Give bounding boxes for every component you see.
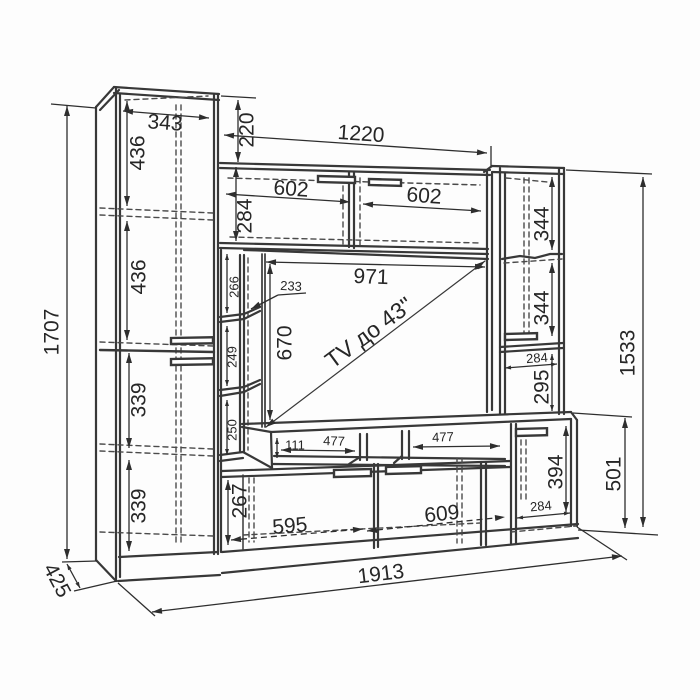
svg-text:339: 339 — [128, 488, 151, 523]
svg-text:284: 284 — [234, 198, 257, 233]
svg-text:111: 111 — [285, 437, 305, 452]
svg-text:595: 595 — [271, 513, 308, 539]
svg-text:1707: 1707 — [41, 309, 64, 356]
svg-text:339: 339 — [128, 382, 151, 417]
svg-text:394: 394 — [545, 454, 568, 489]
svg-text:1533: 1533 — [617, 330, 640, 377]
svg-text:602: 602 — [406, 183, 443, 208]
svg-text:343: 343 — [147, 110, 184, 135]
svg-text:1220: 1220 — [337, 121, 385, 147]
svg-text:1913: 1913 — [356, 560, 405, 589]
svg-text:284: 284 — [529, 498, 552, 515]
svg-text:425: 425 — [38, 560, 75, 602]
svg-text:TV до 43": TV до 43" — [320, 292, 418, 374]
svg-text:436: 436 — [128, 259, 151, 294]
svg-text:295: 295 — [531, 369, 554, 404]
svg-text:971: 971 — [353, 265, 389, 289]
svg-text:501: 501 — [603, 456, 626, 491]
svg-text:609: 609 — [423, 501, 460, 528]
svg-text:266: 266 — [226, 276, 241, 298]
svg-text:477: 477 — [323, 433, 345, 449]
svg-text:267: 267 — [229, 483, 252, 518]
svg-text:344: 344 — [531, 206, 554, 241]
svg-text:477: 477 — [432, 429, 454, 445]
svg-text:602: 602 — [273, 176, 310, 201]
svg-text:284: 284 — [526, 350, 549, 366]
svg-text:250: 250 — [224, 419, 239, 441]
svg-text:249: 249 — [224, 346, 239, 368]
svg-text:220: 220 — [236, 112, 259, 147]
svg-text:436: 436 — [127, 135, 150, 170]
svg-text:233: 233 — [280, 278, 302, 294]
svg-text:344: 344 — [531, 290, 554, 325]
svg-text:670: 670 — [274, 325, 297, 360]
